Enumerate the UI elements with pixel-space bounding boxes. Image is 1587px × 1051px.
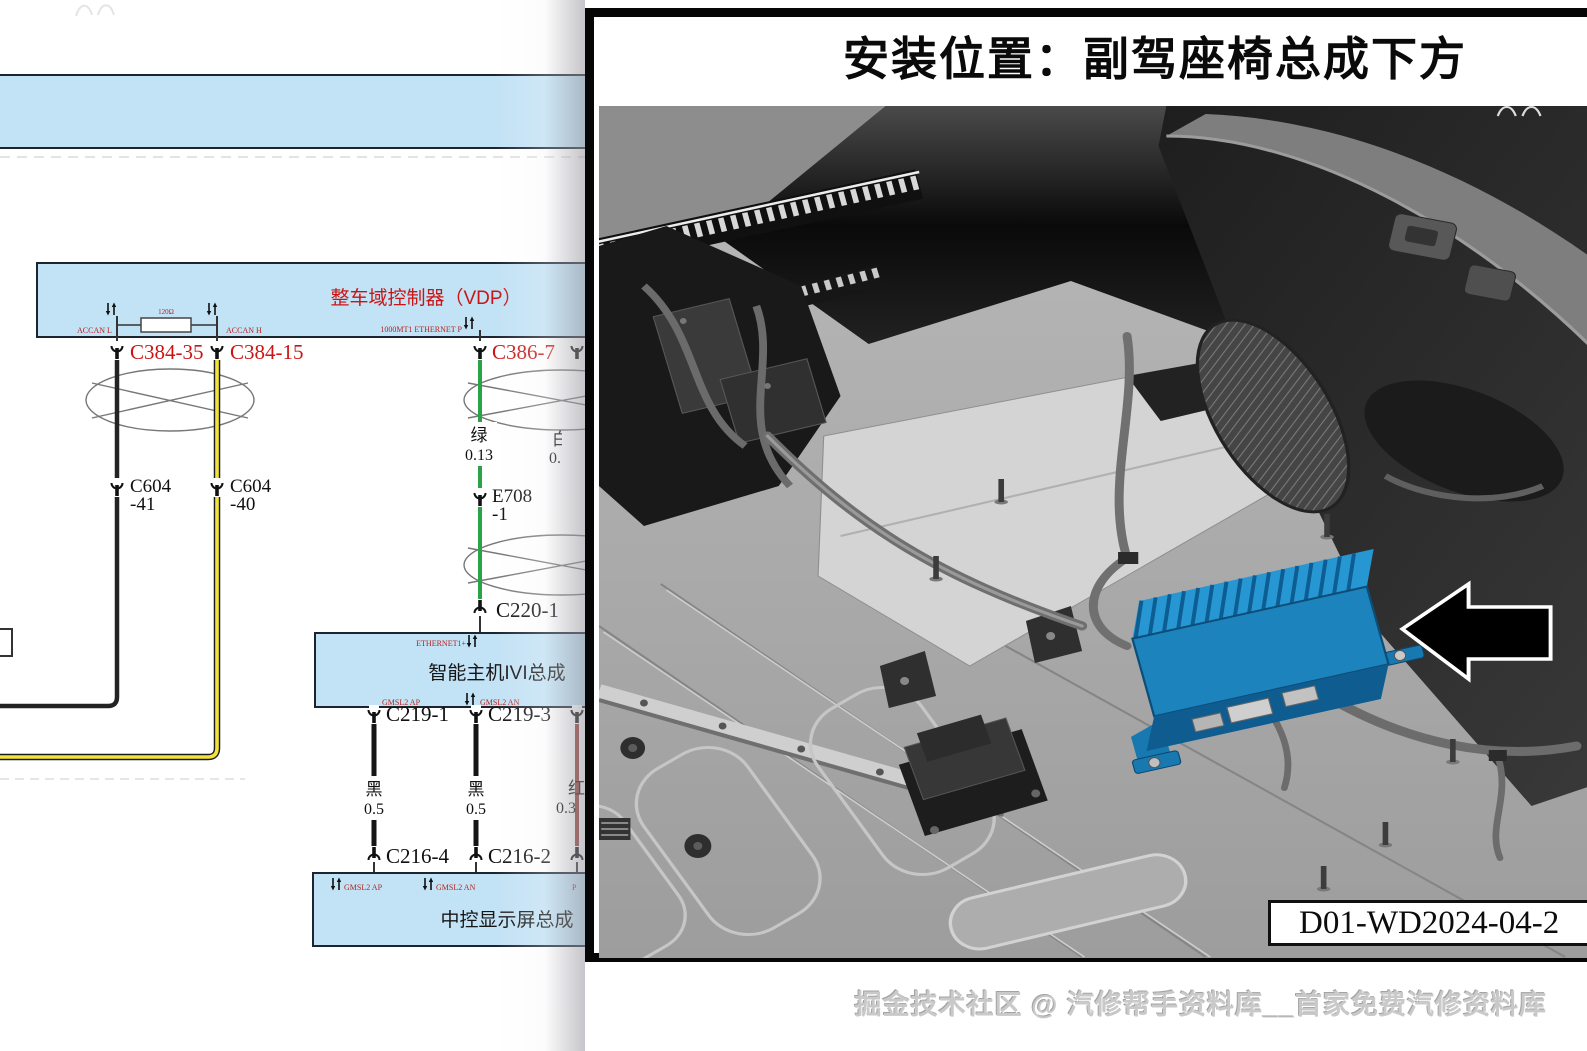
pin-gmsl2-an: GMSL2 AN bbox=[436, 883, 476, 892]
pin-accan-h: ACCAN H bbox=[226, 326, 262, 335]
pin-ethernet1: ETHERNET1+ bbox=[416, 639, 466, 648]
connector-icon-c384-35 bbox=[112, 341, 123, 360]
wire-color-label-partial: 红 bbox=[568, 779, 585, 798]
wire-size-label: 0.5 bbox=[364, 801, 384, 818]
page-watermark-squiggle bbox=[76, 5, 114, 16]
connector-label: C386-7 bbox=[492, 340, 555, 364]
terminating-resistor bbox=[141, 318, 191, 332]
pin-partial: P bbox=[572, 883, 577, 892]
panel-title: 安装位置：副驾座椅总成下方 bbox=[594, 17, 1587, 97]
page: 整车域控制器（VDP） 120Ω ACCAN L ACCAN H 1000MT1… bbox=[0, 0, 1587, 1051]
connector-icon-e708 bbox=[475, 488, 486, 507]
connector-icon-c384-15 bbox=[212, 341, 223, 360]
pin-accan-l: ACCAN L bbox=[77, 326, 112, 335]
site-watermark: 掘金技术社区 @ 汽修帮手资料库__首家免费汽修资料库 bbox=[855, 983, 1547, 1022]
wire-size-label-partial: 0.3 bbox=[556, 800, 576, 817]
wire-color-label: 黑 bbox=[366, 780, 383, 799]
display-box: GMSL2 AP GMSL2 AN P 中控显示屏总成 bbox=[313, 873, 585, 946]
resistor-value: 120Ω bbox=[158, 308, 174, 316]
connector-label: -41 bbox=[130, 494, 155, 515]
doc-code: D01-WD2024-04-2 bbox=[1299, 905, 1559, 941]
wire-can-h-yellow-outline bbox=[0, 357, 217, 757]
connector-icon-c604-40 bbox=[212, 478, 223, 497]
display-title: 中控显示屏总成 bbox=[440, 909, 573, 931]
connector-icon-c386-7 bbox=[475, 341, 486, 360]
doc-code-box: D01-WD2024-04-2 bbox=[1268, 900, 1587, 946]
pin-ethernet: 1000MT1 ETHERNET P bbox=[380, 325, 462, 334]
connector-icon-partial-right2 bbox=[572, 705, 583, 724]
twisted-pair-can bbox=[86, 369, 254, 431]
twisted-pair-eth-1 bbox=[464, 370, 585, 430]
connector-label: -40 bbox=[230, 494, 255, 515]
wire-size-label: 0.5 bbox=[466, 801, 486, 818]
vdp-title: 整车域控制器（VDP） bbox=[330, 287, 521, 309]
connector-label: C384-15 bbox=[230, 340, 304, 364]
top-component-box bbox=[0, 75, 585, 148]
connector-icon-partial-right bbox=[572, 341, 583, 360]
car-floor-scene bbox=[599, 106, 1587, 958]
wire-can-h-yellow bbox=[0, 357, 217, 757]
location-panel: 安装位置：副驾座椅总成下方 bbox=[585, 8, 1587, 962]
wire-color-label: 绿 bbox=[471, 426, 488, 445]
connector-label: C216-2 bbox=[488, 844, 551, 868]
wire-color-label-partial: 白 bbox=[552, 430, 569, 449]
wire-color-label: 黑 bbox=[468, 780, 485, 799]
connector-label: -1 bbox=[492, 504, 508, 525]
connector-icon-c219-1 bbox=[369, 705, 380, 724]
wire-size-label: 0.13 bbox=[465, 447, 493, 464]
ivi-title: 智能主机IVI总成 bbox=[428, 662, 565, 684]
wire-size-label-partial: 0. bbox=[549, 450, 561, 467]
connector-icon-c219-3 bbox=[471, 705, 482, 724]
twisted-pair-eth-2 bbox=[464, 535, 585, 595]
wire-can-l-black bbox=[0, 357, 117, 706]
connector-label: C384-35 bbox=[130, 340, 204, 364]
partial-left-box bbox=[0, 629, 12, 656]
vdp-box: 整车域控制器（VDP） 120Ω ACCAN L ACCAN H 1000MT1… bbox=[37, 263, 585, 344]
wiring-diagram: 整车域控制器（VDP） 120Ω ACCAN L ACCAN H 1000MT1… bbox=[0, 0, 585, 1051]
connector-label: C220-1 bbox=[496, 598, 559, 622]
ivi-box: ETHERNET1+ 智能主机IVI总成 GMSL2 AP GMSL2 AN bbox=[315, 633, 585, 707]
location-image bbox=[599, 106, 1587, 958]
pin-gmsl2-ap: GMSL2 AP bbox=[344, 883, 383, 892]
connector-label: C219-3 bbox=[488, 702, 551, 726]
connector-icon-c604-41 bbox=[112, 478, 123, 497]
connector-label: C219-1 bbox=[386, 702, 449, 726]
connector-label: C216-4 bbox=[386, 844, 450, 868]
connector-icon-c220-1 bbox=[475, 599, 486, 618]
